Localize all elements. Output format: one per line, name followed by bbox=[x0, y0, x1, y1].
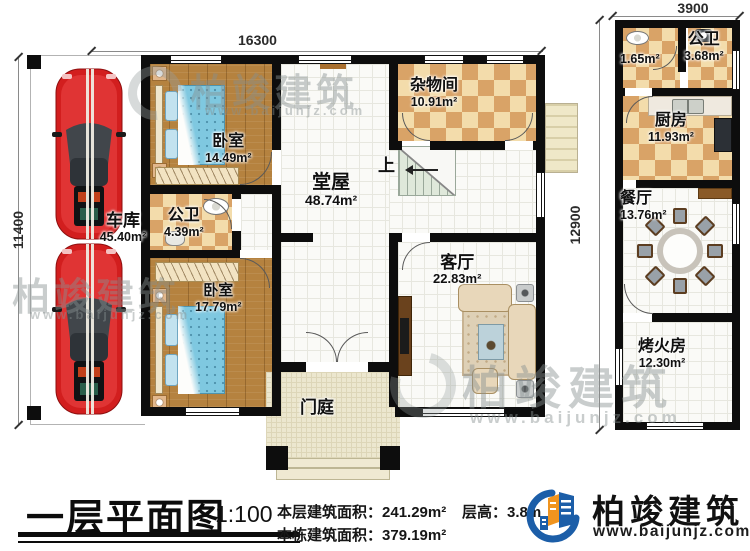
room-area: 45.40m² bbox=[88, 230, 158, 244]
bed-headboard bbox=[155, 85, 163, 165]
room-label-fire-room: 烤火房 12.30m² bbox=[638, 338, 686, 370]
dim-right-label: 12900 bbox=[567, 185, 583, 265]
window bbox=[422, 408, 505, 417]
dim-tick bbox=[595, 425, 604, 434]
room-area: 13.76m² bbox=[620, 208, 667, 222]
wall bbox=[536, 64, 545, 417]
room-label-bedroom2: 卧室 17.79m² bbox=[195, 283, 242, 314]
window bbox=[170, 55, 222, 64]
room-name: 杂物间 bbox=[410, 77, 458, 95]
room-name: 烤火房 bbox=[638, 338, 686, 356]
dim-line-annex-top bbox=[612, 16, 740, 17]
pillow bbox=[165, 129, 178, 159]
tv-icon bbox=[400, 318, 409, 354]
bed-headboard bbox=[155, 306, 163, 394]
wall bbox=[430, 141, 505, 150]
porch-column bbox=[380, 446, 400, 470]
wall bbox=[368, 362, 398, 372]
floor-area-value: 241.29m² bbox=[382, 504, 446, 521]
dim-top-label: 16300 bbox=[238, 32, 277, 48]
wall bbox=[732, 245, 740, 422]
dining-table-icon bbox=[657, 228, 703, 274]
wall bbox=[272, 185, 281, 407]
dim-tick bbox=[14, 420, 23, 429]
room-name: 餐厅 bbox=[620, 190, 667, 208]
window bbox=[536, 172, 545, 218]
room-label-living: 客厅 22.83m² bbox=[433, 253, 481, 287]
room-area: 1.65m² bbox=[620, 52, 660, 66]
wall bbox=[272, 64, 281, 150]
pillow bbox=[165, 354, 178, 386]
wall bbox=[732, 28, 740, 50]
logo-website-text: www.baijunjz.com bbox=[593, 523, 750, 541]
sofa-icon bbox=[458, 284, 512, 312]
chair-icon bbox=[673, 278, 687, 294]
room-name: 公卫 bbox=[164, 207, 204, 225]
stairs-up-label: 上 bbox=[378, 156, 395, 175]
wall bbox=[389, 242, 398, 407]
room-area: 14.49m² bbox=[205, 151, 252, 165]
logo-mark-icon bbox=[522, 484, 586, 546]
room-label-annex-small: 1.65m² bbox=[620, 52, 660, 66]
wall bbox=[272, 233, 313, 242]
garage-column bbox=[27, 55, 41, 69]
building-area-label: 本栋建筑面积： bbox=[277, 527, 382, 544]
wall bbox=[636, 180, 740, 188]
wall bbox=[232, 231, 241, 250]
wall bbox=[430, 233, 536, 242]
window bbox=[424, 55, 464, 64]
wall bbox=[232, 194, 241, 199]
pillow bbox=[165, 91, 178, 121]
window bbox=[298, 55, 352, 64]
wall bbox=[272, 362, 306, 372]
window bbox=[185, 407, 240, 416]
room-label-garage: 车库 45.40m² bbox=[88, 211, 158, 244]
dim-line-top bbox=[90, 51, 543, 52]
room-label-hall: 堂屋 48.74m² bbox=[305, 172, 357, 209]
wall bbox=[615, 28, 623, 348]
room-area: 12.30m² bbox=[638, 356, 686, 370]
wall bbox=[141, 185, 281, 194]
room-label-kitchen: 厨房 11.93m² bbox=[648, 112, 694, 144]
room-label-annex-bath: 公卫 3.68m² bbox=[684, 31, 724, 63]
room-label-bedroom1: 卧室 14.49m² bbox=[205, 133, 252, 165]
window-sill bbox=[320, 64, 346, 69]
pillow bbox=[165, 314, 178, 346]
room-area: 48.74m² bbox=[305, 193, 357, 209]
double-bed-icon bbox=[155, 306, 225, 394]
wall bbox=[652, 313, 740, 322]
chair-icon bbox=[707, 244, 723, 258]
window bbox=[615, 348, 623, 386]
scale-label: 1:100 bbox=[215, 501, 273, 528]
side-steps bbox=[545, 103, 578, 173]
room-name: 客厅 bbox=[433, 253, 481, 272]
dim-line-right bbox=[599, 20, 600, 430]
dim-annex-label: 3900 bbox=[648, 0, 738, 16]
nightstand-icon bbox=[152, 288, 167, 303]
porch-column bbox=[266, 446, 288, 470]
wall bbox=[141, 250, 240, 258]
building-area-line: 本栋建筑面积：379.19m² bbox=[277, 524, 446, 545]
wall bbox=[389, 233, 402, 242]
room-area: 17.79m² bbox=[195, 300, 242, 314]
wardrobe-icon bbox=[155, 262, 239, 282]
dim-left-label: 11400 bbox=[10, 190, 26, 270]
title-underline-thick bbox=[18, 532, 300, 537]
wall bbox=[533, 141, 545, 150]
floor-area-line: 本层建筑面积：241.29m² bbox=[277, 501, 446, 522]
wall bbox=[652, 88, 740, 96]
armchair-icon bbox=[472, 368, 498, 394]
wall bbox=[389, 141, 402, 150]
wall bbox=[615, 88, 625, 96]
coffee-table-icon bbox=[478, 324, 504, 360]
room-area: 22.83m² bbox=[433, 272, 481, 287]
stairs-arrow bbox=[412, 169, 438, 171]
stove-icon bbox=[714, 118, 732, 152]
niche-floor bbox=[241, 194, 272, 250]
fire-room-floor bbox=[623, 322, 732, 422]
bed-sheet bbox=[178, 85, 200, 165]
dim-tick bbox=[537, 46, 546, 55]
floor-area-label: 本层建筑面积： bbox=[277, 504, 382, 521]
room-name: 公卫 bbox=[684, 31, 724, 49]
wall bbox=[389, 64, 398, 150]
room-name: 厨房 bbox=[648, 112, 694, 130]
room-name: 堂屋 bbox=[305, 172, 357, 193]
garage-column bbox=[27, 406, 41, 420]
title-underline-thin bbox=[18, 541, 300, 543]
car-icon bbox=[50, 243, 128, 415]
nightstand-icon bbox=[152, 66, 167, 81]
sink-icon bbox=[626, 31, 649, 45]
stairs-arrow-head bbox=[405, 165, 413, 175]
room-name: 卧室 bbox=[205, 133, 252, 151]
chair-icon bbox=[637, 244, 653, 258]
wall bbox=[615, 20, 740, 28]
room-label-dining: 餐厅 13.76m² bbox=[620, 190, 667, 222]
room-name: 门庭 bbox=[300, 398, 334, 417]
sofa-icon bbox=[508, 304, 536, 380]
window bbox=[732, 50, 740, 90]
room-area: 3.68m² bbox=[684, 49, 724, 63]
room-name: 卧室 bbox=[195, 283, 242, 300]
chair-icon bbox=[673, 208, 687, 224]
floor-plan-canvas: 16300 11400 12900 3900 bbox=[0, 0, 750, 551]
building-area-value: 379.19m² bbox=[382, 527, 446, 544]
room-label-porch: 门庭 bbox=[300, 398, 334, 417]
hall-floor bbox=[281, 64, 389, 362]
porch-step bbox=[276, 468, 390, 480]
room-area: 4.39m² bbox=[164, 225, 204, 239]
bed-sheet bbox=[178, 306, 200, 394]
floor-height-label: 层高： bbox=[462, 504, 507, 521]
room-area: 10.91m² bbox=[410, 95, 458, 109]
end-table-icon bbox=[516, 284, 534, 302]
end-table-icon bbox=[516, 380, 534, 398]
room-label-bath1: 公卫 4.39m² bbox=[164, 207, 204, 239]
window bbox=[646, 422, 704, 430]
wardrobe-icon bbox=[155, 167, 239, 185]
wall bbox=[615, 386, 623, 422]
room-name: 车库 bbox=[88, 211, 158, 230]
room-label-storage: 杂物间 10.91m² bbox=[410, 77, 458, 109]
window bbox=[486, 55, 524, 64]
room-area: 11.93m² bbox=[648, 130, 694, 144]
porch-step bbox=[284, 458, 382, 468]
sideboard-icon bbox=[698, 188, 732, 199]
window bbox=[732, 203, 740, 245]
